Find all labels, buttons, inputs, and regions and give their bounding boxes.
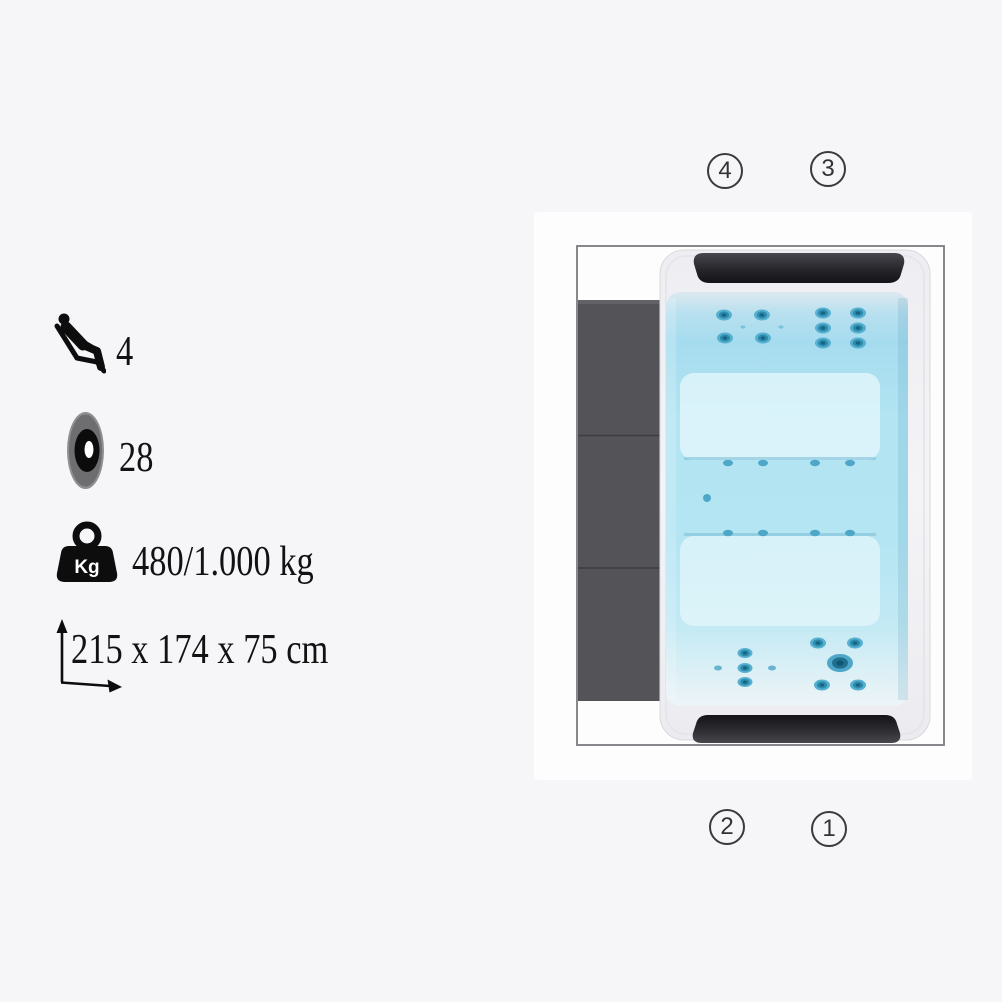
marker-2: 2 [709, 809, 745, 845]
headrest-bottom [693, 715, 901, 743]
weight-icon: Kg [56, 520, 122, 586]
weight-badge: Kg [74, 557, 99, 578]
marker-3: 3 [810, 151, 846, 187]
spa-top-view-drawing [534, 212, 972, 780]
bench-upper [680, 373, 880, 460]
product-spec-sheet: 4 28 Kg 480/1.000 kg 215 x 174 x 75 cm [0, 0, 1002, 1002]
jet-icon [65, 411, 107, 491]
jets-value: 28 [119, 436, 153, 480]
seat-icon [54, 311, 106, 375]
weight-value: 480/1.000 kg [132, 540, 314, 584]
headrest-top [694, 253, 905, 283]
marker-1: 1 [811, 811, 847, 847]
seats-value: 4 [116, 330, 133, 374]
bench-lower [680, 536, 880, 626]
water-basin [666, 292, 908, 706]
dimensions-value: 215 x 174 x 75 cm [71, 628, 328, 672]
cabinet-side-panel [578, 300, 663, 701]
marker-4: 4 [707, 153, 743, 189]
spa-top-view-photo [534, 212, 972, 780]
